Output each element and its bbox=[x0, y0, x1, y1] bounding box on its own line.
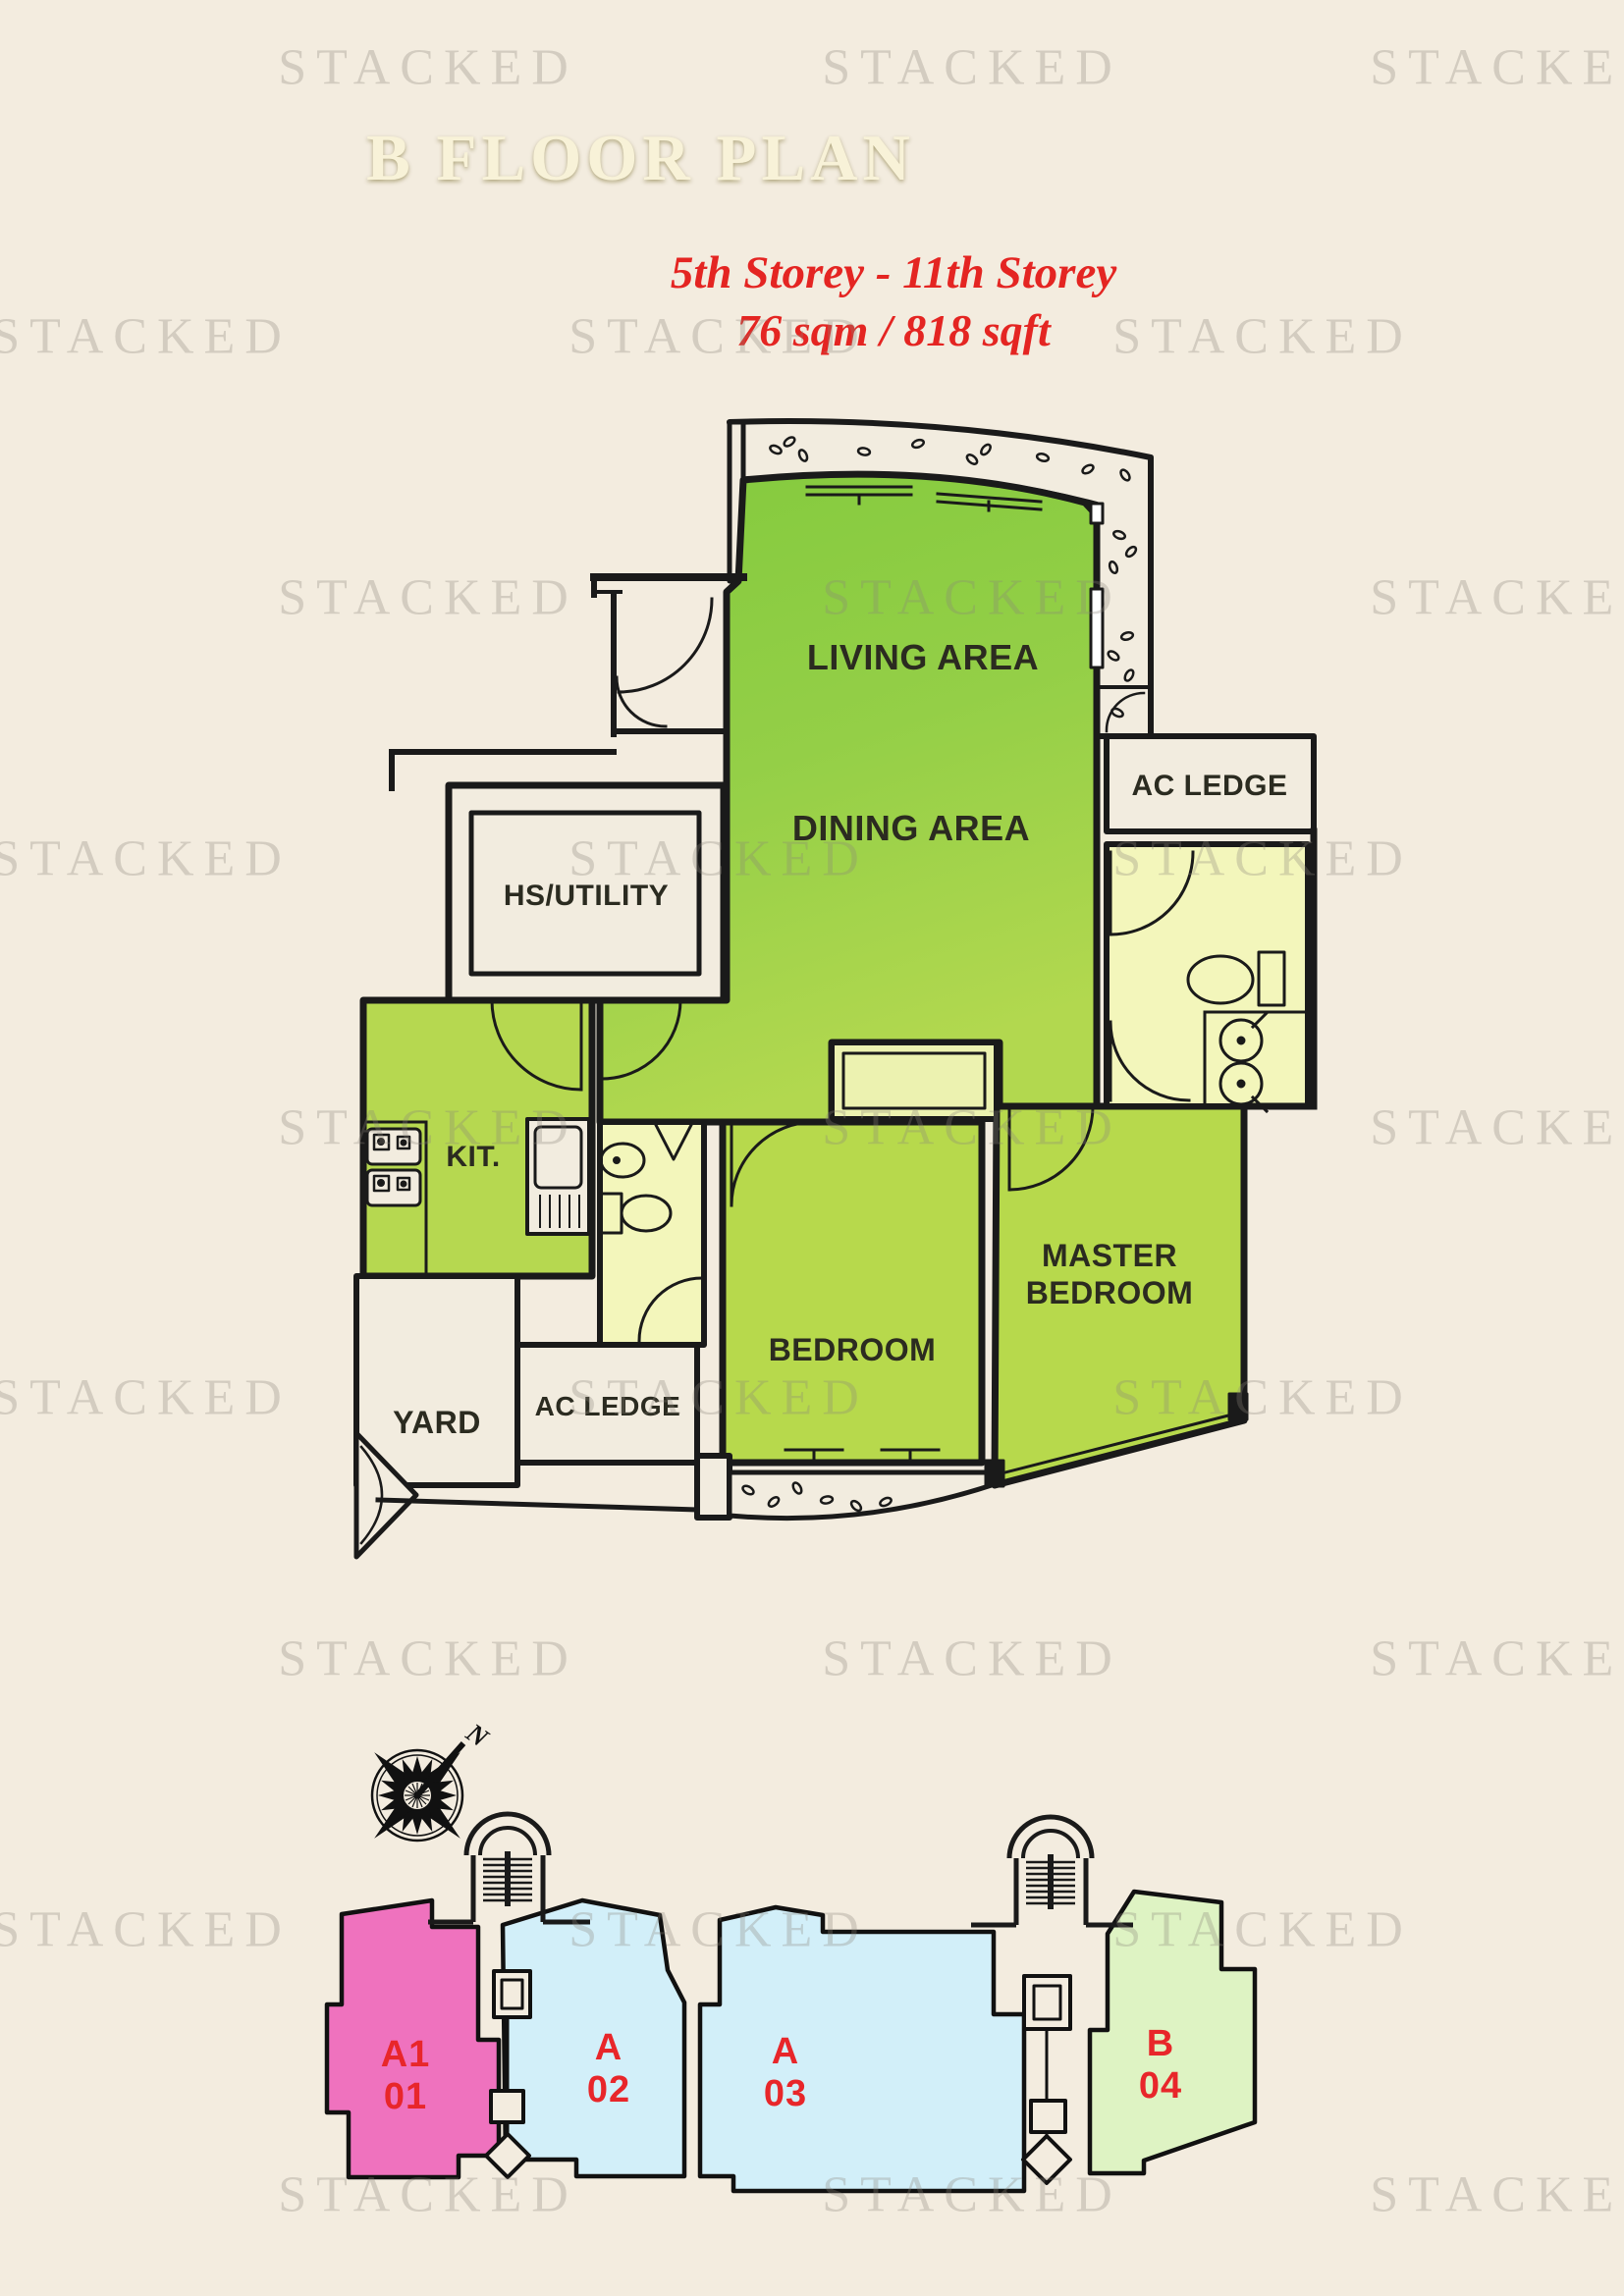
yard-label: YARD bbox=[393, 1405, 481, 1440]
bedroom-label: BEDROOM bbox=[769, 1332, 937, 1367]
living-area-label: LIVING AREA bbox=[807, 637, 1039, 677]
unit-a02-block-label: A bbox=[595, 2027, 623, 2068]
unit-a-02-shape bbox=[503, 1900, 684, 2176]
page-title: B FLOOR PLAN bbox=[366, 121, 1131, 196]
floor-plan: LIVING AREA DINING AREA AC LEDGE HS/UTIL… bbox=[356, 421, 1314, 1557]
title-banner: B FLOOR PLAN bbox=[285, 103, 1213, 214]
floor-area: 76 sqm / 818 sqft bbox=[511, 302, 1276, 359]
floor-plan-page: STACKEDSTACKEDSTACKEDSTACKEDSTACKEDSTACK… bbox=[0, 0, 1624, 2296]
unit-a03-block-label: A bbox=[772, 2031, 799, 2072]
stair-core-right bbox=[971, 1817, 1133, 1925]
unit-a03-number-label: 03 bbox=[764, 2073, 807, 2114]
subtitle-block: 5th Storey - 11th Storey 76 sqm / 818 sq… bbox=[511, 243, 1276, 359]
master-bedroom-label-line2: BEDROOM bbox=[1026, 1275, 1194, 1310]
wardrobe bbox=[832, 1042, 997, 1119]
master-bedroom-label-line1: MASTER bbox=[1042, 1238, 1177, 1273]
site-plan: N A1 bbox=[327, 1709, 1255, 2191]
unit-a02-number-label: 02 bbox=[587, 2069, 630, 2110]
hs-utility-label: HS/UTILITY bbox=[504, 880, 669, 912]
dining-area-label: DINING AREA bbox=[792, 808, 1030, 848]
unit-b04-block-label: B bbox=[1147, 2023, 1174, 2064]
yard-shape bbox=[356, 1276, 517, 1485]
unit-a-03-shape bbox=[700, 1907, 1024, 2191]
storey-range: 5th Storey - 11th Storey bbox=[511, 243, 1276, 302]
compass-icon: N bbox=[331, 1709, 503, 1881]
ac-ledge-bottom-label: AC LEDGE bbox=[535, 1391, 681, 1421]
compass-north-label: N bbox=[460, 1717, 495, 1753]
unit-b04-number-label: 04 bbox=[1139, 2065, 1182, 2107]
unit-a1-number-label: 01 bbox=[384, 2076, 427, 2117]
ac-ledge-top-label: AC LEDGE bbox=[1131, 770, 1287, 802]
bedroom-shape bbox=[723, 1122, 982, 1463]
entry-foyer-walls bbox=[392, 577, 743, 788]
unit-a1-block-label: A1 bbox=[381, 2034, 431, 2075]
kitchen-label: KIT. bbox=[446, 1141, 500, 1173]
